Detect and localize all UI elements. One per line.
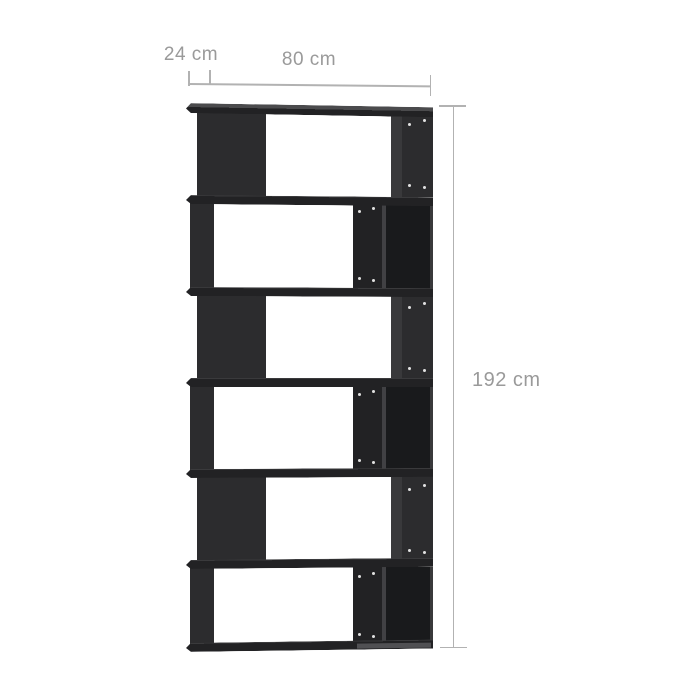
screw-hole-icon xyxy=(358,393,361,396)
tier-3-right-panel-inner-face xyxy=(391,294,402,380)
tier-2-left-wall xyxy=(190,202,214,289)
depth-dimension-label: 24 cm xyxy=(164,44,218,66)
depth-width-boundary-tick xyxy=(209,70,211,85)
tier-1-right-panel xyxy=(402,111,433,197)
tier-4-right-edge xyxy=(430,385,433,471)
width-dimension-right-tick xyxy=(430,75,432,96)
depth-dimension-left-tick xyxy=(188,71,190,86)
screw-hole-icon xyxy=(408,306,411,309)
screw-hole-icon xyxy=(372,390,375,393)
width-dimension-line xyxy=(188,83,430,87)
tier-3-left-panel xyxy=(197,294,266,380)
height-dimension-label: 192 cm xyxy=(472,369,541,392)
tier-3 xyxy=(186,296,433,378)
tier-1 xyxy=(186,113,433,195)
tier-4 xyxy=(186,387,433,469)
tier-5 xyxy=(186,478,433,560)
screw-hole-icon xyxy=(423,186,426,189)
screw-hole-icon xyxy=(372,207,375,210)
tier-4-partition xyxy=(353,385,382,471)
tier-2-compartment-interior xyxy=(386,202,430,289)
screw-hole-icon xyxy=(372,461,375,464)
screw-hole-icon xyxy=(423,484,426,487)
tier-3-right-panel xyxy=(402,294,433,380)
tier-5-right-panel-inner-face xyxy=(391,476,402,562)
height-dimension-bottom-tick xyxy=(440,647,467,649)
screw-hole-icon xyxy=(408,367,411,370)
tier-1-right-panel-inner-face xyxy=(391,111,402,197)
screw-hole-icon xyxy=(423,551,426,554)
screw-hole-icon xyxy=(408,549,411,552)
tier-4-left-wall xyxy=(190,385,214,471)
height-dimension-line xyxy=(453,106,455,648)
screw-hole-icon xyxy=(372,572,375,575)
tier-4-compartment-interior xyxy=(386,385,430,471)
screw-hole-icon xyxy=(408,488,411,491)
tier-6 xyxy=(186,569,433,643)
tier-5-right-panel xyxy=(402,476,433,562)
screw-hole-icon xyxy=(408,123,411,126)
tier-2-partition xyxy=(353,202,382,289)
height-dimension-top-tick xyxy=(439,105,466,107)
screw-hole-icon xyxy=(358,575,361,578)
tier-2-right-edge xyxy=(430,202,433,289)
tier-6-compartment-interior xyxy=(386,567,430,645)
tier-2 xyxy=(186,204,433,287)
tier-6-left-wall xyxy=(190,567,214,645)
screw-hole-icon xyxy=(372,279,375,282)
tier-6-right-edge xyxy=(430,567,433,645)
screw-hole-icon xyxy=(423,119,426,122)
screw-hole-icon xyxy=(358,633,361,636)
width-dimension-label: 80 cm xyxy=(282,49,336,71)
screw-hole-icon xyxy=(408,184,411,187)
product-image-stage: 24 cm 80 cm 192 cm xyxy=(0,0,700,700)
screw-hole-icon xyxy=(358,277,361,280)
screw-hole-icon xyxy=(423,302,426,305)
tier-1-left-panel xyxy=(197,111,266,197)
shelf-board xyxy=(186,287,433,297)
bottom-board-highlight xyxy=(357,643,431,649)
screw-hole-icon xyxy=(423,369,426,372)
shelf-board xyxy=(186,468,433,478)
tier-5-left-panel xyxy=(197,476,266,562)
tier-6-partition xyxy=(353,567,382,645)
bookcase xyxy=(186,103,433,653)
screw-hole-icon xyxy=(358,210,361,213)
shelf-board xyxy=(186,378,433,387)
screw-hole-icon xyxy=(372,635,375,638)
screw-hole-icon xyxy=(358,459,361,462)
